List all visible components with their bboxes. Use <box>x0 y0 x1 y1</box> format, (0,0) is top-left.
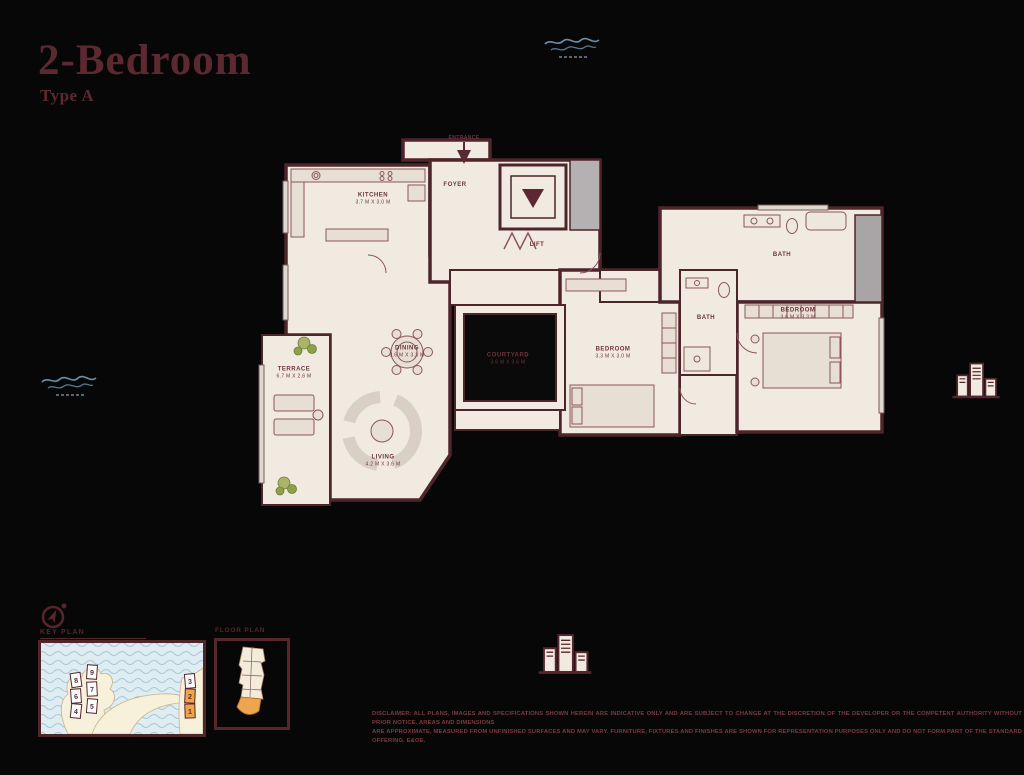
courtyard-opening <box>455 305 565 410</box>
highlighted-unit <box>237 697 261 714</box>
floor-footprint <box>217 641 287 727</box>
building-marker-highlighted: 1 <box>185 704 195 718</box>
buildings-icon <box>950 360 1002 400</box>
building-marker: 8 <box>70 672 82 687</box>
wall-poche <box>570 160 600 230</box>
entrance-label: ENTRANCE <box>449 135 480 141</box>
buildings-icon <box>536 631 594 676</box>
page-subtitle: Type A <box>40 86 94 106</box>
disclaimer: DISCLAIMER: ALL PLANS, IMAGES AND SPECIF… <box>372 710 1022 746</box>
building-marker: 7 <box>87 682 98 697</box>
svg-text:2: 2 <box>188 694 192 701</box>
floor-box-title: FLOOR PLAN <box>215 627 291 634</box>
svg-text:6: 6 <box>74 694 78 701</box>
svg-text:9: 9 <box>90 670 94 677</box>
brochure-page: 2-Bedroom Type A <box>0 0 1024 775</box>
svg-text:5: 5 <box>90 704 95 711</box>
compass-icon <box>40 600 70 630</box>
key-plan-map: 8 6 4 9 7 5 3 2 1 <box>38 640 206 737</box>
building-marker: 3 <box>184 674 195 689</box>
svg-text:3: 3 <box>188 679 193 686</box>
floor-plan-drawing <box>258 133 888 518</box>
building-marker: 6 <box>71 689 82 704</box>
disclaimer-line-2: ARE APPROXIMATE, MEASURED FROM UNFINISHE… <box>372 728 1022 746</box>
svg-text:1: 1 <box>188 709 192 716</box>
building-marker: 9 <box>87 665 98 680</box>
page-title: 2-Bedroom <box>38 38 252 84</box>
svg-text:7: 7 <box>90 687 94 694</box>
brand-watermark-icon <box>541 36 603 64</box>
building-marker-highlighted: 2 <box>185 689 196 704</box>
floor-plan: KITCHEN 3.7 M X 3.0 M FOYER LIFT DINING … <box>258 133 888 518</box>
building-marker: 5 <box>86 699 97 714</box>
floor-location-box <box>214 638 290 730</box>
key-plan-title: KEY PLAN <box>40 629 146 639</box>
building-marker: 4 <box>70 704 81 719</box>
wall-poche <box>855 215 882 302</box>
disclaimer-line-1: DISCLAIMER: ALL PLANS, IMAGES AND SPECIF… <box>372 710 1022 728</box>
brand-watermark-icon <box>38 374 100 402</box>
